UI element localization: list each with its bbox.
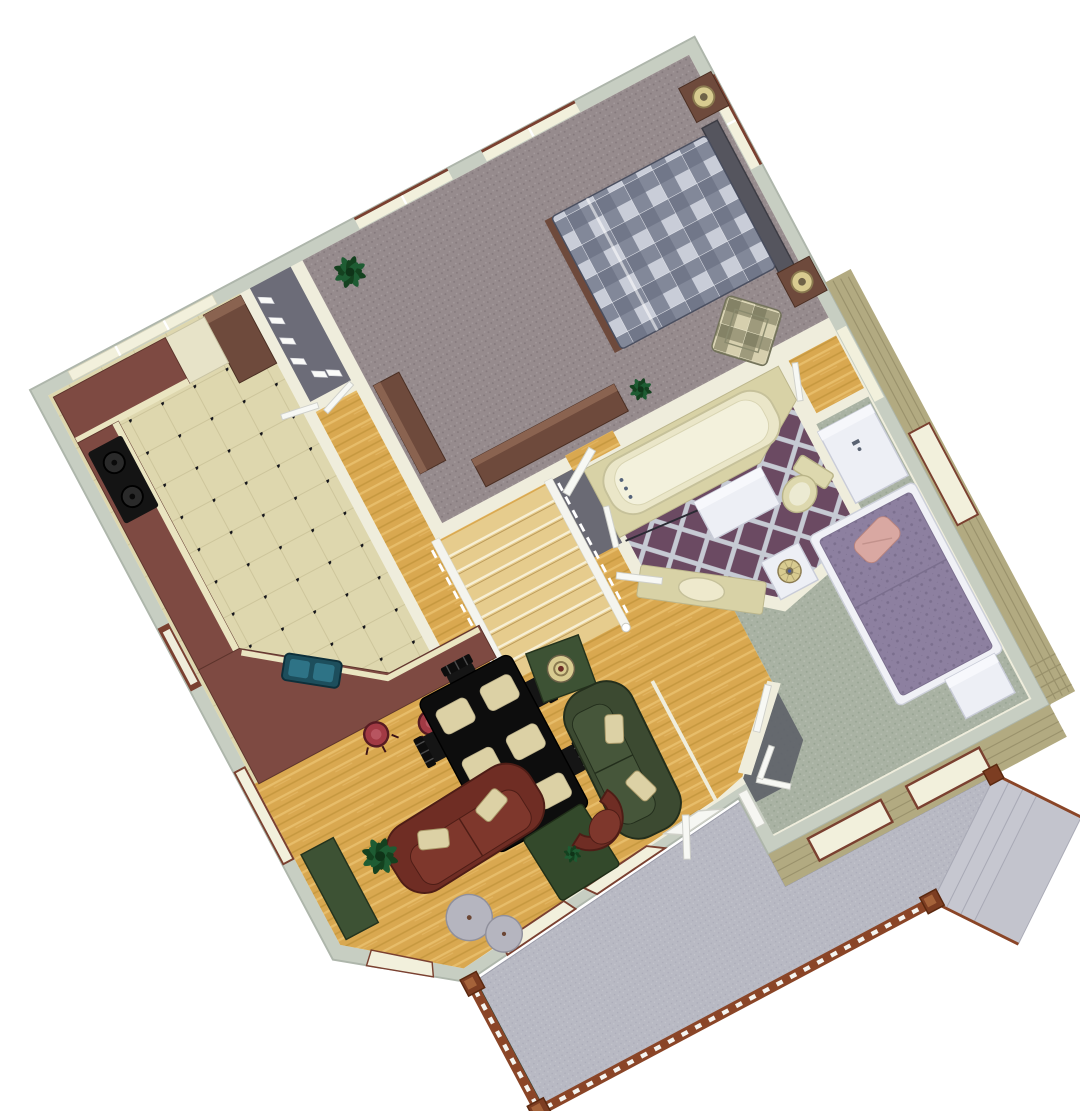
floor-plan-figure bbox=[0, 0, 1080, 1111]
sofa-pillow bbox=[605, 714, 624, 743]
deck-door-leaf bbox=[682, 815, 690, 859]
sofa-pillow bbox=[417, 828, 450, 850]
